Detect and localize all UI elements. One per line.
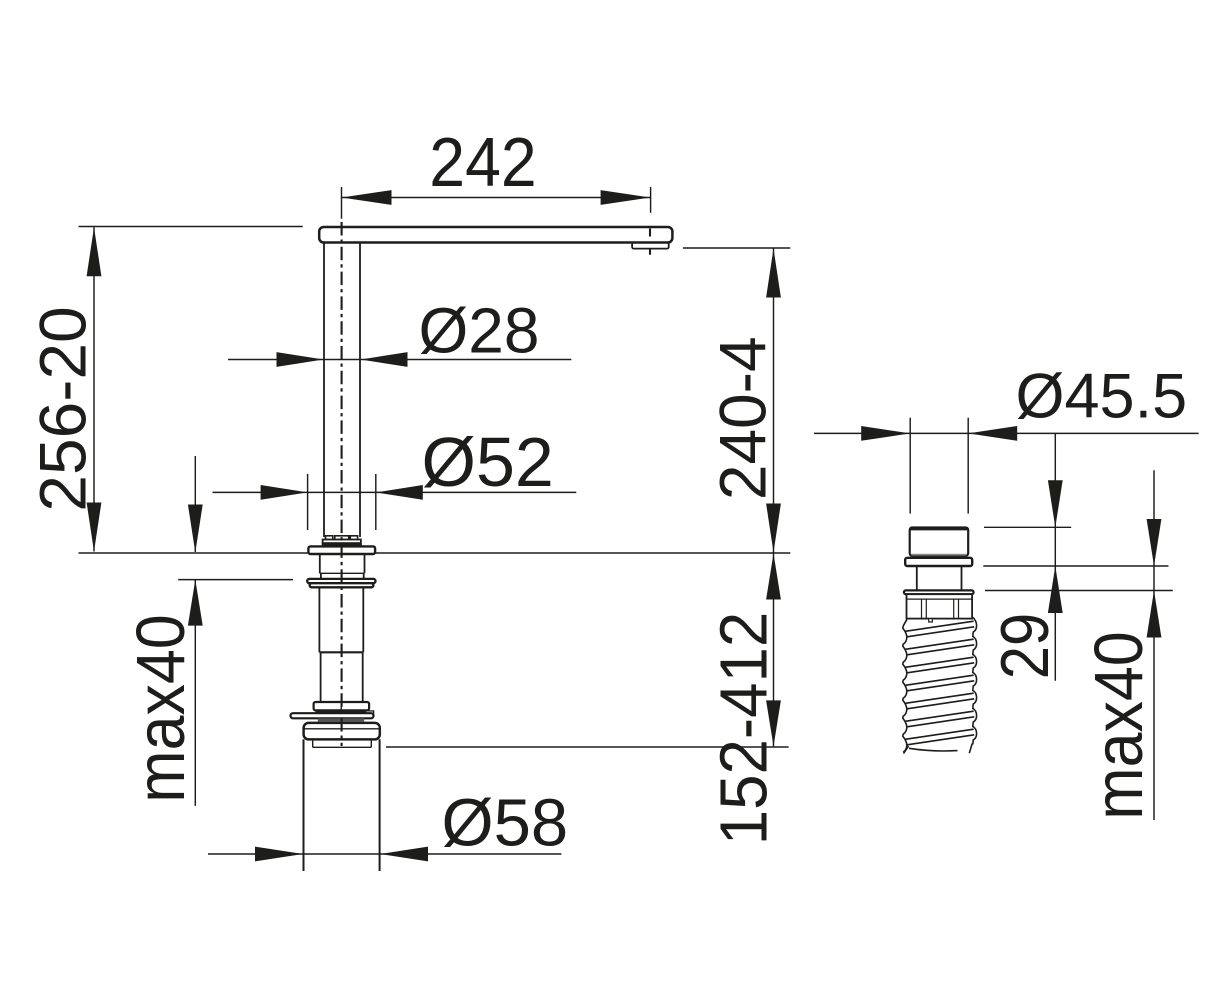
- svg-text:152-412: 152-412: [706, 612, 781, 846]
- svg-text:Ø58: Ø58: [442, 786, 569, 861]
- svg-text:max40: max40: [121, 614, 198, 802]
- svg-text:Ø52: Ø52: [422, 423, 554, 501]
- svg-text:240-4: 240-4: [706, 336, 780, 500]
- svg-text:242: 242: [429, 124, 536, 202]
- svg-text:max40: max40: [1079, 631, 1156, 819]
- svg-text:256-20: 256-20: [26, 306, 100, 512]
- svg-text:29: 29: [986, 613, 1062, 680]
- svg-text:Ø28: Ø28: [419, 295, 540, 367]
- svg-text:Ø45.5: Ø45.5: [1016, 362, 1188, 432]
